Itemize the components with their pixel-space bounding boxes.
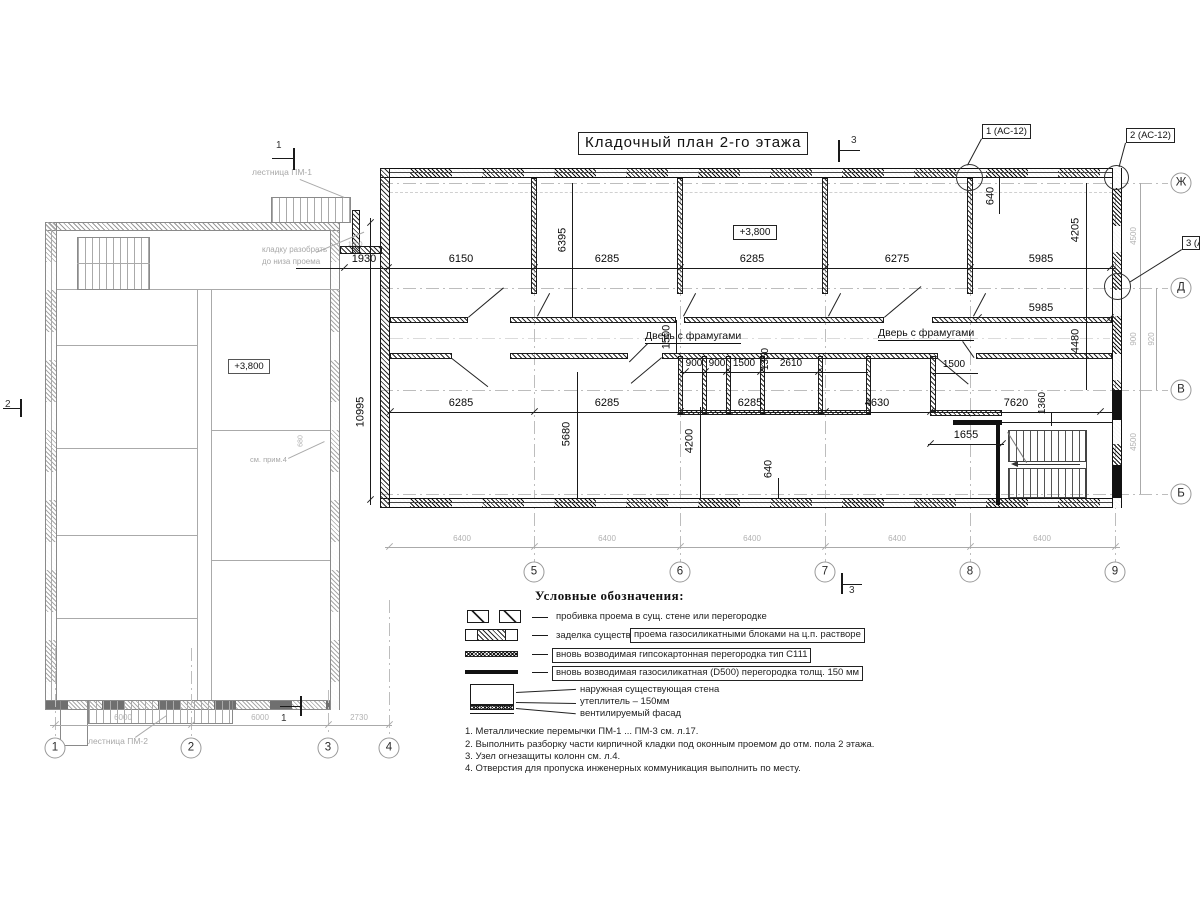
axis-bubble-Zh: Ж [1171, 173, 1192, 194]
leader-line [516, 689, 576, 693]
leader-line [629, 343, 648, 362]
dim-text: 920 [1148, 332, 1156, 345]
section-mark-line [3, 408, 20, 409]
dim-line [680, 372, 868, 373]
partition [678, 356, 683, 414]
facade-offset-line [390, 192, 1112, 193]
legend-item-5-line3: вентилируемый фасад [580, 708, 681, 721]
dim-text: 2610 [780, 359, 802, 369]
corridor-wall [976, 353, 1112, 359]
page-title: Кладочный план 2-го этажа [578, 132, 808, 155]
dim-text: 1360 [1038, 392, 1048, 414]
dim-text: 5680 [562, 422, 573, 446]
dim-text: 900 [709, 359, 726, 369]
dim-text: 900 [1130, 332, 1138, 345]
door-label-2: Дверь с фрамугами [878, 327, 974, 341]
detail-circle-2 [1104, 165, 1129, 190]
legend-dash [532, 654, 548, 655]
section-mark-1-top: 1 [276, 141, 282, 151]
left-partition [57, 448, 197, 449]
dim-text: 1930 [352, 254, 376, 265]
stair-walkline-arrowhead [1008, 461, 1018, 467]
legend-swatch-opening [467, 610, 489, 623]
stair-landing-line [77, 263, 150, 264]
dim-text: 1655 [954, 430, 978, 441]
dim-text: 6285 [449, 398, 473, 409]
note-4: 4. Отверстия для пропуска инженерных ком… [465, 763, 801, 776]
leader-line [516, 702, 576, 704]
door-leaf [537, 293, 550, 316]
stair-pm2 [88, 700, 233, 724]
axis-bubble-4: 4 [379, 738, 400, 759]
left-wall-top [45, 222, 340, 231]
grid-dim-line [50, 725, 392, 726]
grid-line [328, 690, 329, 736]
left-partition [197, 289, 198, 700]
section-mark-3-top: 3 [851, 136, 857, 146]
legend-swatch-infill-hatch [477, 630, 506, 640]
left-partition [211, 430, 330, 431]
demolish-note-line2: до низа проема [262, 258, 320, 267]
legend-item-2-boxed: проема газосиликатными блоками на ц.п. р… [630, 628, 865, 643]
section-mark-bar [838, 140, 840, 162]
stairwell-top-line [1002, 422, 1112, 423]
grid-line-axis-Zh [380, 183, 1168, 184]
dim-line [370, 218, 371, 505]
dim-line [700, 407, 701, 498]
axis-bubble-5: 5 [524, 562, 545, 583]
left-partition [57, 345, 197, 346]
tiny-dim: 680 [298, 435, 305, 447]
partition [677, 178, 683, 294]
new-block-wall [996, 420, 1000, 505]
note-2: 2. Выполнить разборку части кирпичной кл… [465, 739, 874, 752]
grid-line-axis-D [380, 288, 1168, 289]
exterior-wall-top [380, 168, 1122, 178]
axis-bubble-6: 6 [670, 562, 691, 583]
dim-line [999, 178, 1000, 214]
dim-text: 6000 [251, 714, 269, 722]
dim-text: 6285 [595, 398, 619, 409]
dim-text: 4500 [1130, 227, 1138, 245]
grid-line [389, 600, 390, 736]
legend-swatch-ext-wall [470, 684, 514, 705]
leader-line [962, 341, 974, 358]
legend-item-2: заделка существ. [556, 630, 633, 643]
tiny-dim: 1000 [348, 241, 362, 248]
left-wall-west-glaze [51, 230, 52, 700]
grid-dim-line [385, 547, 1120, 548]
dim-text: 1500 [733, 359, 755, 369]
legend-item-5-line1: наружная существующая стена [580, 684, 719, 697]
detail-circle-1 [956, 164, 983, 191]
door-leaf [884, 286, 921, 318]
dim-text: 6275 [885, 254, 909, 265]
window-glazing-line [388, 502, 1116, 503]
dim-text: 4630 [865, 398, 889, 409]
grid-dim-line [1140, 183, 1141, 494]
dim-line [778, 478, 779, 498]
note-3: 3. Узел огнезащиты колонн см. л.4. [465, 751, 620, 764]
left-partition [211, 289, 212, 700]
axis-bubble-9: 9 [1105, 562, 1126, 583]
legend-swatch-gypsum [465, 651, 518, 657]
dim-text: 1500 [943, 360, 965, 370]
axis-bubble-1: 1 [45, 738, 66, 759]
grid-line-axis-V [380, 390, 1168, 391]
section-mark-line [838, 150, 860, 151]
corridor-wall [390, 317, 468, 323]
partition [930, 410, 1002, 416]
dim-text: 10995 [356, 397, 367, 428]
dim-text: 1500 [662, 325, 673, 349]
leader-line [1119, 143, 1126, 167]
partition [967, 178, 973, 294]
dim-text: 6400 [598, 535, 616, 543]
stair-flight-upper [1008, 430, 1086, 462]
dim-text: 6150 [449, 254, 473, 265]
dim-text: 6400 [1033, 535, 1051, 543]
section-mark-1-bottom: 1 [281, 714, 287, 724]
dim-text: 6285 [738, 398, 762, 409]
dim-text: 6285 [595, 254, 619, 265]
leader-line [1130, 249, 1182, 282]
partition [930, 356, 936, 412]
dim-text: 6000 [114, 714, 132, 722]
new-block-wall [1113, 390, 1121, 420]
stair2-label: лестница ПМ-2 [88, 737, 148, 746]
stair-pm2-landing [60, 700, 88, 746]
partition [822, 178, 828, 294]
legend-dash [532, 635, 548, 636]
section-mark-bar [20, 399, 22, 417]
callout-2: 2 (АС-12) [1126, 128, 1175, 143]
dim-text: 900 [686, 359, 703, 369]
corridor-centerline [390, 338, 1110, 339]
leader-line [516, 708, 576, 714]
legend-swatch-opening-2 [499, 610, 521, 623]
section-mark-line [841, 584, 862, 585]
corridor-wall [684, 317, 884, 323]
legend-swatch-insulation [470, 705, 514, 710]
window-glazing-line [388, 172, 1116, 173]
callout-3: 3 (АС-12 [1182, 236, 1200, 250]
legend-item-1: пробивка проема в сущ. стене или перегор… [556, 611, 767, 624]
legend-dash [532, 672, 548, 673]
dim-text: 6400 [888, 535, 906, 543]
dim-line [676, 320, 677, 353]
stair-walkline [1014, 464, 1080, 465]
dim-line [932, 373, 978, 374]
dim-text: 6395 [558, 228, 569, 252]
dim-line [1051, 412, 1052, 426]
exterior-wall-left [380, 168, 390, 508]
left-partition [57, 618, 197, 619]
dim-text: 7620 [1004, 398, 1028, 409]
dim-text: 640 [986, 187, 997, 205]
section-mark-line [280, 706, 300, 707]
door-leaf [451, 358, 488, 387]
left-partition [211, 560, 330, 561]
dim-line [928, 444, 1004, 445]
drawing-sheet: лестница ПМ-1 кладку разобрать до низа п… [0, 0, 1200, 900]
stair-landing-line [1086, 430, 1087, 498]
section-mark-line [272, 158, 293, 159]
dim-text: 4480 [1071, 329, 1082, 353]
partition [726, 356, 731, 414]
corridor-wall [510, 353, 628, 359]
axis-bubble-D: Д [1171, 278, 1192, 299]
dim-line [388, 412, 1112, 413]
axis-bubble-3: 3 [318, 738, 339, 759]
new-block-wall [953, 420, 1002, 425]
door-leaf [631, 357, 662, 383]
dim-text: 2730 [350, 714, 368, 722]
exterior-wall-right [1112, 168, 1122, 508]
corridor-wall [390, 353, 452, 359]
axis-bubble-2: 2 [181, 738, 202, 759]
partition [702, 356, 707, 414]
dim-text: 640 [764, 460, 775, 478]
dim-tick [999, 440, 1006, 447]
stair1-label: лестница ПМ-1 [252, 168, 312, 177]
dim-line [572, 183, 573, 317]
door-leaf [828, 293, 841, 316]
left-partition [57, 535, 197, 536]
dim-line [577, 372, 578, 498]
stair-pm1 [271, 197, 351, 223]
door-leaf [683, 293, 696, 316]
dim-line [296, 268, 1115, 269]
detail-circle-3 [1104, 273, 1131, 300]
dim-text: 4205 [1071, 218, 1082, 242]
legend-swatch-facade-line [470, 713, 514, 714]
legend-dash [532, 617, 548, 618]
dim-line [1086, 288, 1087, 390]
level-mark-main: +3,800 [733, 225, 777, 240]
new-block-wall [1113, 465, 1121, 498]
leader-line [300, 179, 345, 198]
see-note-label: см. прим.4 [250, 456, 287, 464]
dim-text: 4200 [685, 429, 696, 453]
note-1: 1. Металлические перемычки ПМ-1 ... ПМ-3… [465, 726, 698, 739]
stair-flight-lower [1008, 468, 1086, 498]
door-label-1: Дверь с фрамугами [645, 330, 741, 344]
exterior-wall-bottom [380, 498, 1122, 508]
level-mark-left: +3,800 [228, 359, 270, 374]
door-leaf [468, 287, 504, 317]
legend-item-3-boxed: вновь возводимая гипсокартонная перегоро… [552, 648, 811, 663]
legend-swatch-d500 [465, 670, 518, 674]
section-mark-bar [293, 148, 295, 170]
corridor-wall [932, 317, 1112, 323]
dim-text: 6285 [740, 254, 764, 265]
axis-bubble-7: 7 [815, 562, 836, 583]
dim-text: 6400 [453, 535, 471, 543]
axis-bubble-B: Б [1171, 484, 1192, 505]
section-mark-bar [300, 696, 302, 716]
door-leaf [973, 293, 986, 316]
dim-text: 6400 [743, 535, 761, 543]
legend-item-4-boxed: вновь возводимая газосиликатная (D500) п… [552, 666, 863, 681]
corridor-wall [510, 317, 676, 323]
dim-text: 5985 [1029, 254, 1053, 265]
callout-1: 1 (АС-12) [982, 124, 1031, 139]
legend-header: Условные обозначения: [535, 588, 684, 604]
leader-line [967, 139, 982, 166]
dim-line [1086, 183, 1087, 288]
dim-text: 1350 [761, 348, 771, 370]
leader-line [288, 441, 325, 459]
partition [818, 356, 823, 414]
axis-bubble-8: 8 [960, 562, 981, 583]
grid-dim-line [1156, 288, 1157, 390]
partition [531, 178, 537, 294]
left-wall-east [330, 230, 340, 710]
dim-text: 5985 [1029, 303, 1053, 314]
axis-bubble-V: В [1171, 380, 1192, 401]
section-mark-3-bottom: 3 [849, 586, 855, 596]
legend-item-5-line2: утеплитель – 150мм [580, 696, 669, 709]
dim-text: 4500 [1130, 433, 1138, 451]
